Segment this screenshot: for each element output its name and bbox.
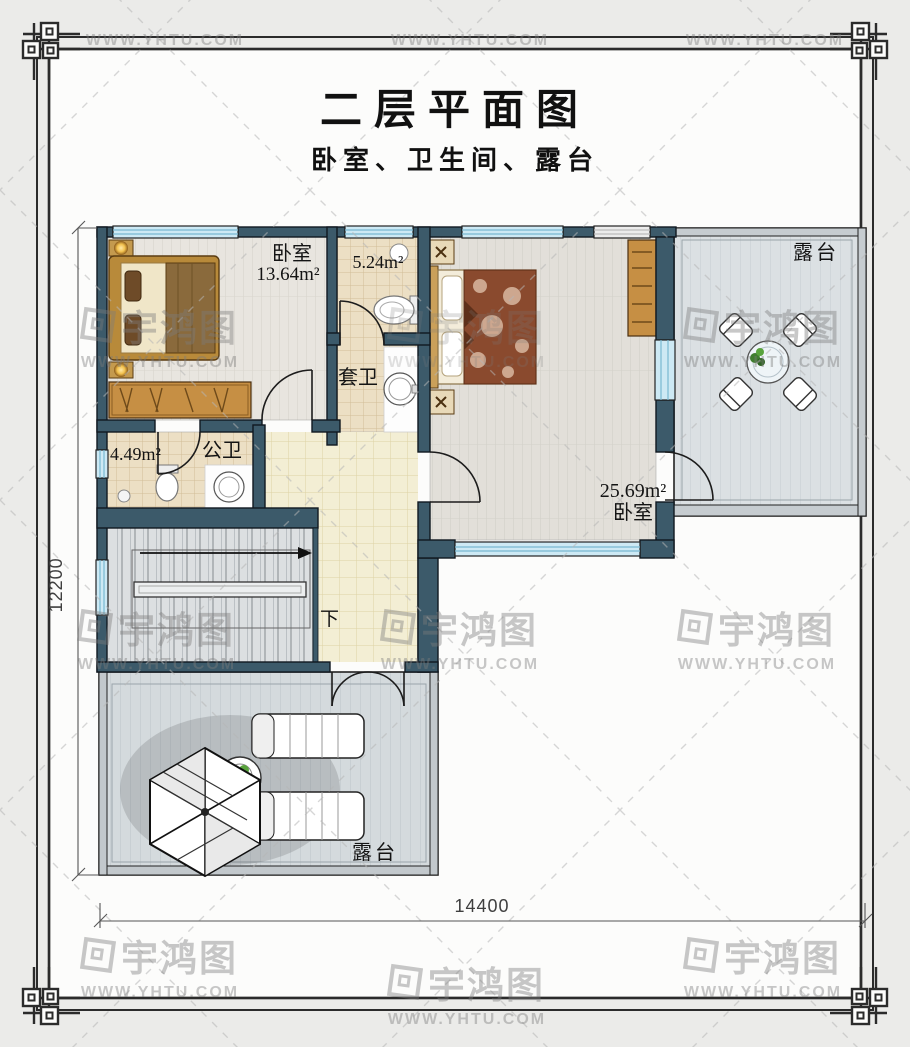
public-bath-name-label: 公卫 [202, 440, 242, 462]
dimension-width-label: 14400 [382, 897, 582, 917]
terrace-right-label: 露台 [793, 242, 839, 264]
bedroom1-name-label: 卧室 [252, 243, 332, 265]
terrace-bottom-label: 露台 [352, 842, 398, 864]
bedroom2-area-label: 25.69m² [578, 480, 688, 502]
page-subtitle: 卧室、卫生间、露台 [0, 140, 910, 177]
stairs-down-label: 下 [320, 610, 339, 631]
bedroom1-area-label: 13.64m² [238, 265, 338, 286]
floor-plan-page: 二层平面图 卧室、卫生间、露台 卧室 13.64m² 5.24m² 套卫 4.4… [0, 0, 910, 1047]
page-title: 二层平面图 [0, 76, 910, 137]
dimension-depth-label: 12200 [47, 520, 67, 650]
public-bath-area-label: 4.49m² [110, 445, 161, 465]
bedroom2-name-label: 卧室 [578, 502, 688, 524]
ensuite-area-label: 5.24m² [340, 253, 416, 273]
ensuite-name-label: 套卫 [338, 367, 378, 389]
